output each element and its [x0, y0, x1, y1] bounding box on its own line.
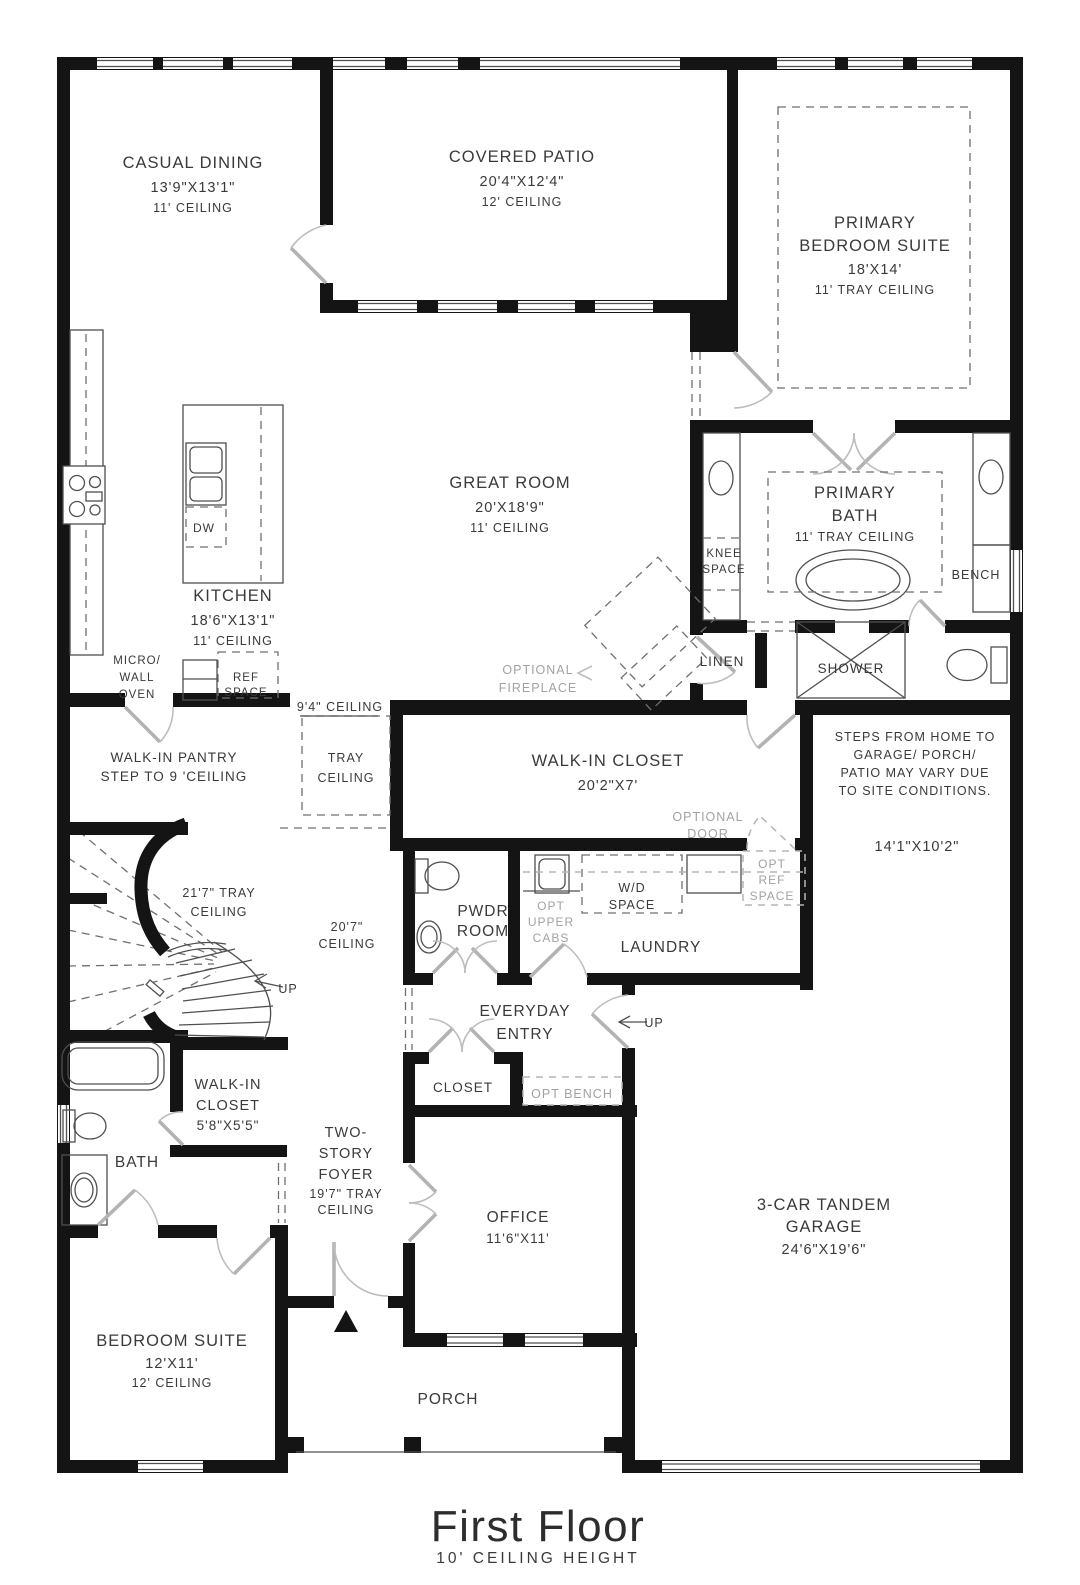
pwdr-label-2: ROOM — [457, 923, 509, 940]
entry-closet-doors — [429, 1019, 494, 1052]
optional-fireplace-label-2: FIREPLACE — [499, 681, 577, 695]
steps-note-1: STEPS FROM HOME TO — [835, 730, 996, 744]
page-title: First Floor — [431, 1502, 646, 1551]
steps-note-4: TO SITE CONDITIONS. — [839, 784, 992, 798]
primary-bedroom-label-2: BEDROOM SUITE — [799, 237, 950, 255]
primary-bedroom-windows — [777, 58, 972, 69]
everyday-entry-label-2: ENTRY — [496, 1026, 553, 1043]
ceiling-9-4-label: 9'4" CEILING — [297, 700, 383, 714]
labels: CASUAL DINING 13'9"X13'1" 11' CEILING CO… — [96, 148, 1000, 1567]
tray-ceiling-label-2: CEILING — [317, 771, 374, 785]
casual-dining-dim: 13'9"X13'1" — [151, 180, 236, 196]
bedroom-suite-label: BEDROOM SUITE — [96, 1332, 247, 1350]
kitchen-island — [183, 405, 283, 583]
primary-bath-label-2: BATH — [832, 507, 879, 525]
opt-bench-label: OPT BENCH — [531, 1087, 613, 1101]
foyer-ceiling: CEILING — [317, 1203, 374, 1217]
foyer-label-2: STORY — [319, 1146, 373, 1162]
bedroom-suite-ceiling: 12' CEILING — [132, 1376, 213, 1390]
small-closet-dim: 5'8"X5'5" — [197, 1118, 260, 1133]
casual-dining-label: CASUAL DINING — [123, 154, 264, 172]
garage-dim: 24'6"X19'6" — [782, 1242, 867, 1258]
steps-note-3: PATIO MAY VARY DUE — [840, 766, 989, 780]
cooktop — [63, 466, 105, 524]
floor-plan-drawing: CASUAL DINING 13'9"X13'1" 11' CEILING CO… — [0, 0, 1080, 1585]
micro-label-3: OVEN — [119, 689, 156, 701]
optional-fireplace-label-1: OPTIONAL — [502, 663, 573, 677]
primary-bedroom-ceiling: 11' TRAY CEILING — [815, 283, 935, 297]
foyer-label-3: FOYER — [319, 1167, 374, 1183]
hall-tray-ceiling-outline — [302, 716, 390, 815]
bath2-tub — [62, 1042, 164, 1090]
great-room-ceiling: 11' CEILING — [470, 521, 550, 535]
primary-bath-label-1: PRIMARY — [814, 484, 896, 502]
kitchen-ceiling: 11' CEILING — [193, 634, 273, 648]
micro-label-1: MICRO/ — [113, 655, 161, 667]
small-closet-label-2: CLOSET — [196, 1098, 260, 1114]
opt-upper-cabs-3: CABS — [533, 931, 570, 945]
optional-door-swing — [747, 816, 795, 849]
steps-note-2: GARAGE/ PORCH/ — [853, 748, 976, 762]
pantry-door — [125, 707, 173, 742]
covered-patio-dim: 20'4"X12'4" — [480, 174, 565, 190]
closet-label: CLOSET — [433, 1080, 493, 1095]
pwdr-toilet-bowl — [425, 862, 459, 890]
great-room-dim: 20'X18'9" — [475, 500, 545, 516]
walk-in-closet-label: WALK-IN CLOSET — [532, 752, 685, 770]
garage-door — [662, 1461, 980, 1472]
porch-label: PORCH — [418, 1391, 479, 1408]
opt-upper-cabs-2: UPPER — [528, 915, 574, 929]
opt-ref-label-3: SPACE — [750, 889, 795, 903]
walk-in-closet-dim: 20'2"X7' — [578, 778, 639, 794]
primary-bedroom-door — [734, 352, 772, 408]
bath2-fixtures — [62, 1042, 164, 1225]
page-subtitle: 10' CEILING HEIGHT — [436, 1550, 639, 1567]
bath-bench-window — [1011, 550, 1022, 612]
bedroom-suite-window — [138, 1461, 203, 1472]
everyday-entry-label-1: EVERYDAY — [480, 1003, 571, 1020]
opt-upper-cabs-1: OPT — [537, 899, 565, 913]
patio-door — [291, 225, 326, 283]
knee-space-label-2: SPACE — [702, 564, 745, 576]
walk-in-closet-door — [747, 715, 795, 748]
stairs-up-label: UP — [278, 982, 297, 996]
pwdr-label-1: PWDR — [457, 903, 508, 920]
wc-toilet-tank — [991, 647, 1007, 683]
walk-in-pantry-label-2: STEP TO 9 'CEILING — [101, 769, 248, 784]
ceiling-20-7-label-1: 20'7" — [331, 920, 364, 934]
casual-dining-ceiling: 11' CEILING — [153, 201, 233, 215]
entry-direction-triangle — [334, 1310, 358, 1332]
bedroom-suite-door — [217, 1238, 270, 1274]
primary-bath-fixtures — [703, 433, 1010, 698]
garage-up-label: UP — [644, 1016, 663, 1030]
micro-label-2: WALL — [120, 672, 155, 684]
bedroom-suite-dim: 12'X11' — [145, 1356, 198, 1372]
front-door — [334, 1242, 388, 1296]
bath2-label: BATH — [115, 1154, 159, 1171]
dishwasher-label: DW — [193, 521, 215, 535]
dining-windows — [97, 58, 292, 69]
great-room-label: GREAT ROOM — [449, 474, 570, 492]
tray-ceiling-label-1: TRAY — [328, 751, 364, 765]
optional-door-label-2: DOOR — [687, 827, 729, 841]
covered-patio-label: COVERED PATIO — [449, 148, 595, 166]
office-french-doors — [409, 1165, 436, 1241]
sink-right — [979, 460, 1003, 494]
walk-in-pantry-label-1: WALK-IN PANTRY — [110, 750, 237, 765]
ref-space-label-2: SPACE — [224, 687, 267, 699]
small-closet-door — [159, 1112, 183, 1145]
garage-label-1: 3-CAR TANDEM — [757, 1196, 891, 1214]
optional-door-label-1: OPTIONAL — [672, 810, 743, 824]
sink-left — [709, 461, 733, 495]
island-sink — [186, 443, 226, 505]
garage-hall-dim: 14'1"X10'2" — [875, 839, 960, 855]
wd-space-label-1: W/D — [618, 881, 645, 895]
foyer-dim: 19'7" TRAY — [309, 1187, 382, 1201]
wd-space-label-2: SPACE — [609, 898, 655, 912]
opt-ref-label-1: OPT — [758, 857, 786, 871]
wc-door — [909, 600, 945, 626]
stair-door-tick — [146, 980, 164, 996]
opt-ref-label-2: REF — [759, 873, 786, 887]
office-dim: 11'6"X11' — [486, 1231, 550, 1246]
fireplace-pointer — [578, 666, 592, 680]
tray-21-7-label-2: CEILING — [190, 905, 247, 919]
appliance-space — [687, 855, 741, 893]
floor-plan-page: CASUAL DINING 13'9"X13'1" 11' CEILING CO… — [0, 0, 1080, 1585]
laundry-door — [530, 944, 587, 977]
patio-top-edge — [333, 57, 680, 70]
shower-label: SHOWER — [818, 661, 885, 676]
covered-patio-ceiling: 12' CEILING — [482, 195, 563, 209]
kitchen-label: KITCHEN — [193, 587, 272, 605]
primary-bedroom-dim: 18'X14' — [848, 262, 902, 278]
ref-space-label-1: REF — [233, 672, 259, 684]
primary-bedroom-label-1: PRIMARY — [834, 214, 916, 232]
garage-label-2: GARAGE — [786, 1218, 863, 1236]
primary-bath-ceiling: 11' TRAY CEILING — [795, 530, 915, 544]
linen-label: LINEN — [700, 654, 745, 669]
primary-bath-double-doors — [813, 433, 895, 474]
ceiling-20-7-label-2: CEILING — [318, 937, 375, 951]
foyer-label-1: TWO- — [325, 1125, 368, 1141]
kitchen-dim: 18'6"X13'1" — [191, 613, 276, 629]
office-label: OFFICE — [487, 1209, 550, 1226]
tray-21-7-label-1: 21'7" TRAY — [182, 886, 255, 900]
bench-label: BENCH — [952, 568, 1001, 582]
powder-room-doors — [433, 941, 497, 973]
vanity-right — [973, 433, 1010, 545]
bath2-toilet-bowl — [74, 1113, 106, 1139]
knee-space-label-1: KNEE — [706, 548, 741, 560]
powder-room-fixtures — [415, 859, 459, 953]
laundry-label: LAUNDRY — [621, 939, 702, 956]
pwdr-toilet-tank — [415, 859, 428, 893]
wc-toilet-bowl — [947, 650, 987, 681]
small-closet-label-1: WALK-IN — [195, 1077, 262, 1093]
